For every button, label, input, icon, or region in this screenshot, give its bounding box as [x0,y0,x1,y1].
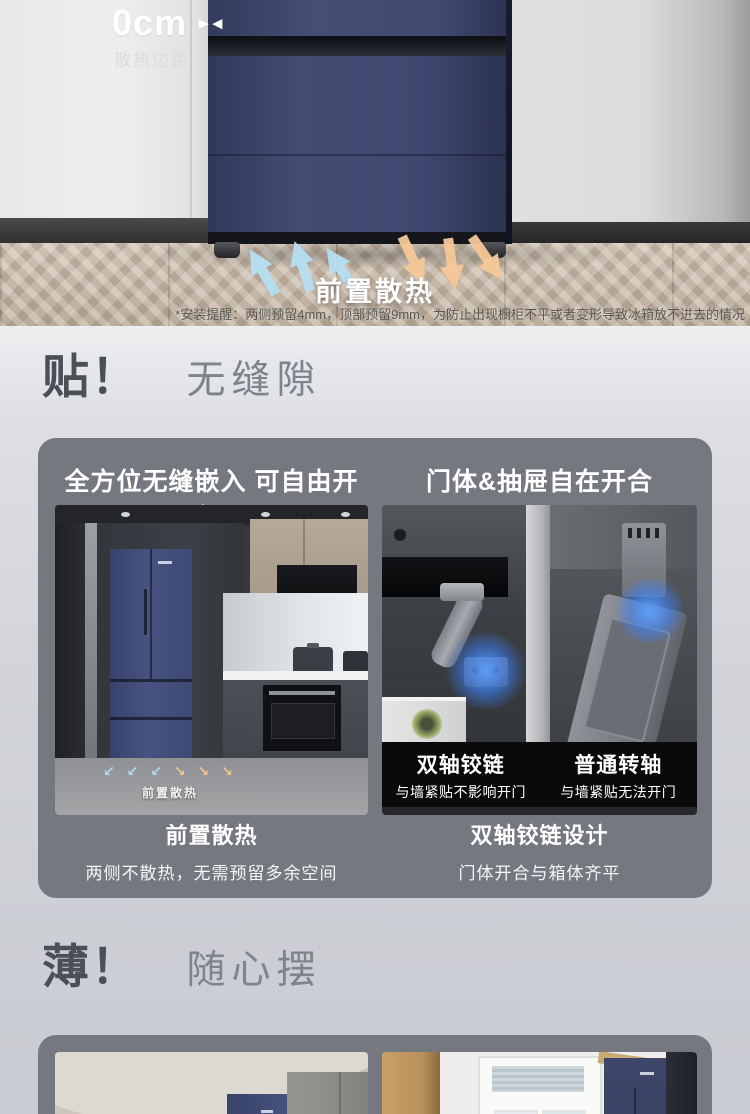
kitchen-wok [343,651,368,673]
warm-air-arrows-icon: ↘ ↘ ↘ [174,763,237,779]
gap-arrows-icon: ►◄ [195,14,223,34]
kitchen-fridge [110,549,192,761]
caption-dual-axis-desc: 门体开合与箱体齐平 [382,859,697,884]
hinge-left-scene [382,505,526,742]
pivot-bracket-slot-4 [655,528,659,538]
hinge-photo: 双轴铰链 与墙紧贴不影响开门 普通转轴 与墙紧贴无法开门 [382,505,697,815]
hinge-label-dual-axis: 双轴铰链 与墙紧贴不影响开门 [382,742,540,807]
hinge-label-band: 双轴铰链 与墙紧贴不影响开门 普通转轴 与墙紧贴无法开门 [382,742,697,807]
hinge-glow-right [612,579,688,643]
kitchen-photo: ↙ ↙ ↙ ↘ ↘ ↘ 前置散热 [55,505,368,815]
hinge-left-cabinet-dot [394,529,406,541]
hinge-photo-footer-strip [382,807,697,815]
product-detail-page: 0cm►◄ 散热边距 前置散热 *安装提醒：两侧预留4mm，顶部预留9mm，为防… [0,0,750,1114]
kitchen-fridge-logo [158,561,172,564]
hinge-center-bar [526,505,550,742]
hallway-photo [382,1052,697,1114]
hero-photo: 0cm►◄ 散热边距 前置散热 *安装提醒：两侧预留4mm，顶部预留9mm，为防… [0,0,750,330]
hinge-label-ordinary-pivot-desc: 与墙紧贴无法开门 [540,782,698,802]
hero-wall-right [510,0,750,224]
hinge-label-ordinary-pivot-title: 普通转轴 [540,749,698,779]
pivot-bracket-slot-1 [628,528,632,538]
hallway-door-glass-2 [542,1110,586,1114]
kitchen-oven [263,685,341,751]
kitchen-airflow-arrows-icon: ↙ ↙ ↙ ↘ ↘ ↘ [85,763,255,780]
fridge-upper-door [208,0,512,36]
hallway-window-frame [478,1056,602,1114]
hallway-fridge-door-split [634,1088,636,1114]
fit-card-right-title: 门体&抽屉自在开合 [382,462,697,498]
fit-card: 全方位无缝嵌入 可自由开门 门体&抽屉自在开合 [38,438,712,898]
kitchen-ceiling-light-1 [121,512,130,517]
room-corner-photo [55,1052,368,1114]
section-fit-title-bold: 贴！ [42,350,140,403]
fridge-drawer-seam [208,154,512,156]
fridge-edge-right [506,0,512,244]
caption-dual-axis-title: 双轴铰链设计 [382,818,697,850]
hallway-fridge-side [666,1052,697,1114]
room-fridge [227,1094,287,1114]
kitchen-front-vent-tag: 前置散热 [85,784,255,801]
clearance-label: 散热边距 [114,46,190,71]
kitchen-fridge-door-split [150,549,152,679]
section-thin-title-bold: 薄！ [42,940,140,993]
section-fit-title-light: 无缝隙 [186,359,321,402]
hallway-transom-glass [492,1066,584,1092]
fridge-drawer-front [208,56,512,232]
pivot-bracket-slot-3 [646,528,650,538]
hinge-right-scene [550,505,697,742]
room-fridge-logo [261,1110,273,1113]
section-fit-title: 贴！ 无缝隙 [42,338,702,398]
install-disclaimer: *安装提醒：两侧预留4mm，顶部预留9mm，为防止出现橱柜不平或者变形导致冰箱放… [175,304,745,323]
caption-front-vent: 前置散热 两侧不散热，无需预留多余空间 [55,818,368,884]
kitchen-fridge-drawer-seam-2 [110,717,192,720]
caption-front-vent-title: 前置散热 [55,818,368,850]
hinge-arm-cap [440,583,484,601]
kitchen-ceiling-light-3 [341,512,350,517]
hinge-label-dual-axis-desc: 与墙紧贴不影响开门 [382,782,540,802]
kitchen-left-wall-strip [85,523,97,773]
hallway-fridge-front [604,1058,666,1114]
fridge-handle-recess [208,36,512,56]
kitchen-pot-lid [307,643,319,648]
fridge-corner-roller [412,709,442,739]
pivot-bracket-slot-2 [637,528,641,538]
kitchen-oven-handle [269,691,335,695]
clearance-value: 0cm►◄ [112,2,223,44]
cool-air-arrows-icon: ↙ ↙ ↙ [103,763,166,779]
caption-dual-axis: 双轴铰链设计 门体开合与箱体齐平 [382,818,697,884]
kitchen-ceiling-light-2 [261,512,270,517]
kitchen-oven-window [271,703,335,739]
kitchen-countertop [223,671,368,680]
hero-fridge [208,0,512,258]
caption-front-vent-desc: 两侧不散热，无需预留多余空间 [55,859,368,884]
section-thin-title: 薄！ 随心摆 [42,928,702,988]
room-cabinet-seam [339,1072,341,1114]
hallway-wood-doorway [382,1052,440,1114]
thin-card [38,1035,712,1114]
kitchen-fridge-handle [144,589,147,635]
room-cabinet-panels [287,1072,368,1114]
hallway-fridge [604,1052,697,1114]
hinge-label-dual-axis-title: 双轴铰链 [382,749,540,779]
hallway-door-glass [494,1110,538,1114]
kitchen-pot [293,647,333,673]
hinge-label-ordinary-pivot: 普通转轴 与墙紧贴无法开门 [540,742,698,807]
section-thin-title-light: 随心摆 [186,949,321,992]
kitchen-fridge-drawer-seam-1 [110,679,192,682]
hallway-fridge-logo [640,1072,654,1075]
